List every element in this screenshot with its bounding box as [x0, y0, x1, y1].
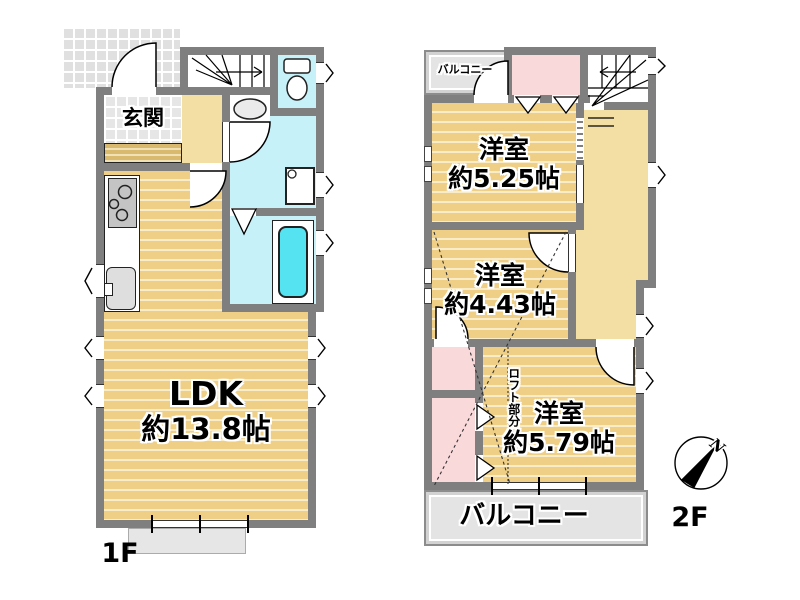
- balcony-north-door-opening: [474, 95, 508, 103]
- hall-2f-window-2: [636, 314, 644, 338]
- room-525-label: 洋室 約5.25帖: [424, 136, 584, 194]
- wall-segment: [504, 47, 512, 95]
- hall-2f-upper: [584, 110, 648, 232]
- bathroom-window: [316, 230, 324, 256]
- closet-north-opening-1: [514, 95, 540, 103]
- wall-segment: [636, 280, 656, 288]
- entrance-door-opening: [112, 87, 156, 95]
- room-579-south-window: [492, 482, 586, 490]
- room-443-label: 洋室 約4.43帖: [420, 262, 580, 320]
- floor-plan-canvas: N 玄関 LDK 約13.8帖 洋室 約5.25帖 洋室 約4.43帖 洋室 約…: [0, 0, 800, 600]
- wall-segment: [96, 87, 104, 528]
- hall-2f-window-1: [648, 162, 656, 188]
- hall-2f-mid: [576, 230, 648, 280]
- wall-segment: [248, 520, 316, 528]
- room-525-name: 洋室: [424, 136, 584, 165]
- wall-segment: [188, 87, 272, 95]
- closet-south-a: [432, 347, 475, 390]
- wall-segment: [540, 95, 552, 103]
- ldk-left-window-2: [96, 384, 104, 408]
- wall-segment: [222, 162, 230, 304]
- hall-1f-floor: [182, 95, 222, 163]
- entrance-porch-tile: [62, 27, 180, 88]
- genkan-step-boards: [104, 143, 182, 163]
- ldk-label: LDK 約13.8帖: [116, 375, 296, 446]
- ldk-right-window-2: [308, 384, 316, 408]
- wall-segment: [180, 47, 324, 55]
- closet-a-door-opening: [434, 339, 468, 347]
- wall-segment: [222, 304, 316, 312]
- bathtub-icon: [278, 226, 308, 298]
- balcony-south-label: バルコニー: [434, 502, 614, 532]
- closet-b-opening-2: [475, 455, 483, 482]
- room-579-door-opening: [596, 339, 634, 347]
- bath-door-opening: [230, 208, 256, 216]
- floor-2-label: 2F: [666, 502, 714, 533]
- wall-segment: [180, 47, 188, 95]
- stair-window: [648, 57, 656, 75]
- closet-south-b: [432, 398, 475, 482]
- room-579-size: 約5.79帖: [479, 429, 639, 458]
- wall-segment: [604, 102, 648, 110]
- ldk-right-window-1: [308, 336, 316, 360]
- ldk-left-window-1: [96, 336, 104, 360]
- wall-segment: [576, 339, 596, 347]
- closet-north-opening-2: [552, 95, 578, 103]
- wall-segment: [96, 520, 152, 528]
- wall-segment: [424, 339, 434, 347]
- loft-area-label: ロフト部分: [506, 356, 520, 438]
- room-525-size: 約5.25帖: [424, 165, 584, 194]
- compass-north-label: N: [705, 434, 729, 458]
- wall-segment: [270, 55, 278, 116]
- toilet-window: [316, 62, 324, 84]
- kitchen-window: [96, 264, 104, 298]
- wall-segment: [468, 339, 576, 347]
- floor-1-label: 1F: [98, 538, 142, 569]
- balcony-north-label: バルコニー: [428, 64, 502, 77]
- washing-machine-icon: [285, 167, 315, 205]
- closet-north: [512, 55, 580, 95]
- wall-segment: [424, 95, 474, 103]
- washbasin-alcove: [230, 95, 270, 122]
- terrace-step: [128, 528, 246, 554]
- room-443-size: 約4.43帖: [420, 291, 580, 320]
- room-579-label: 洋室 約5.79帖: [479, 400, 639, 458]
- wall-segment: [424, 390, 483, 398]
- wall-segment: [96, 163, 190, 171]
- washroom-window: [316, 172, 324, 198]
- ldk-size: 約13.8帖: [116, 413, 296, 446]
- wall-segment: [586, 482, 644, 490]
- wall-segment: [270, 108, 316, 116]
- wall-segment: [256, 208, 316, 216]
- room-579-name: 洋室: [479, 400, 639, 429]
- ldk-door-opening: [190, 163, 222, 171]
- washroom-door-opening: [222, 122, 230, 162]
- room-579-window: [636, 368, 644, 394]
- wall-segment: [424, 482, 492, 490]
- wall-segment: [576, 103, 584, 118]
- ldk-south-window: [152, 520, 248, 528]
- entrance-label: 玄関: [104, 106, 182, 130]
- toilet-room-floor: [278, 55, 316, 108]
- sink-faucet-icon: [104, 283, 113, 296]
- compass-icon: N: [675, 434, 729, 489]
- wall-segment: [222, 95, 230, 122]
- wall-segment: [578, 95, 590, 103]
- stove-icon: [108, 178, 137, 228]
- hall-2f-lower: [576, 280, 636, 339]
- wall-segment: [634, 339, 644, 347]
- wall-segment: [424, 222, 584, 230]
- staircase-1f: [188, 55, 270, 87]
- room-443-name: 洋室: [420, 262, 580, 291]
- ldk-name: LDK: [116, 375, 296, 413]
